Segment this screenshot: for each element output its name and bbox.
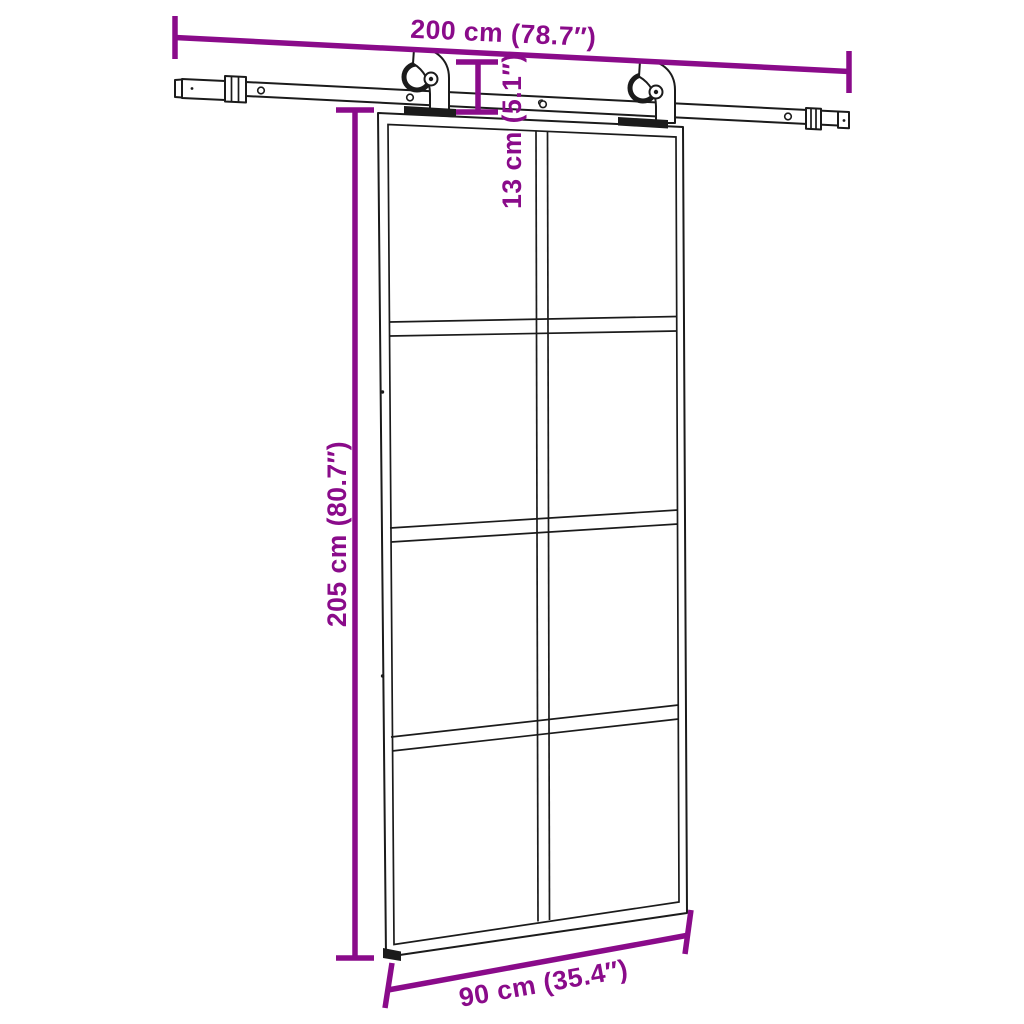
axle-bolt-center [429,77,433,81]
dimension-door-height-label: 205 cm (80.7″) [322,441,352,627]
frame-screw-dot-bottom [381,674,384,677]
diagram-canvas: 200 cm (78.7″) 13 cm (5.1″) 205 cm (80.7… [0,0,1024,1024]
rail-right-collar [806,108,821,130]
rail-left-end-body [182,79,225,100]
roller-hanger-left [404,49,456,118]
dimension-rail-width-label: 200 cm (78.7″) [410,14,597,52]
dimension-door-height: 205 cm (80.7″) [322,110,374,958]
dimension-hanger-drop-label: 13 cm (5.1″) [497,53,527,209]
roller-hanger-right [618,61,675,129]
rail-left-end-cap [175,80,182,98]
axle-bolt-center [654,90,658,94]
dimension-cap-left [385,963,392,1008]
door-outer-frame [378,113,687,957]
sliding-door-dimension-diagram: 200 cm (78.7″) 13 cm (5.1″) 205 cm (80.7… [0,0,1024,1024]
frame-screw-dot-top [381,390,384,393]
rail-left-collar [225,76,246,103]
rail-right-dot [843,119,846,122]
door-panel [378,113,687,961]
dimension-cap-right [685,910,691,954]
rail-left-dot [191,87,194,90]
